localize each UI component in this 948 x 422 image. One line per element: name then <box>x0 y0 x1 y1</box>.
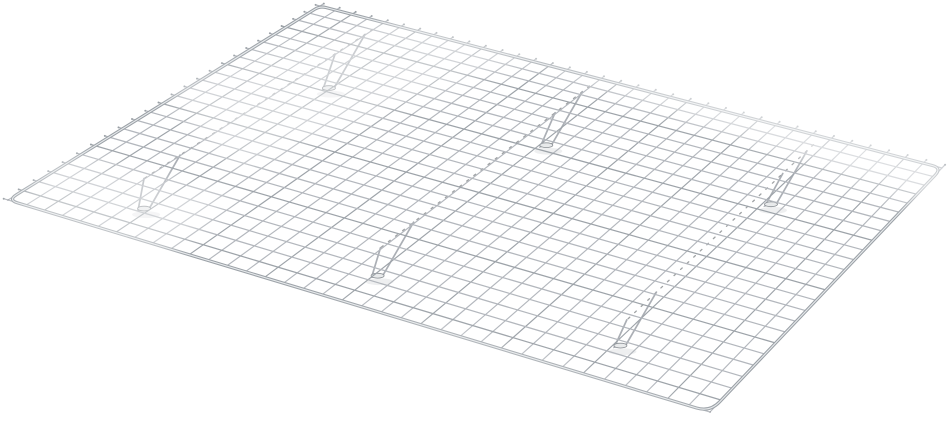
wire-tooth <box>18 188 20 190</box>
wire-tooth <box>292 18 294 20</box>
leg-foot <box>614 343 627 348</box>
wire-tooth <box>339 7 341 9</box>
wire-tooth <box>76 152 78 154</box>
wire-tooth <box>281 25 283 27</box>
wire-tooth <box>257 40 259 42</box>
wire-tooth <box>144 110 146 112</box>
cooling-rack-image <box>0 0 948 422</box>
wire-tooth <box>303 11 305 13</box>
wire-tooth <box>245 47 247 49</box>
wire-tooth <box>371 15 373 17</box>
wire-tooth <box>104 135 106 137</box>
wire-tooth <box>233 55 235 57</box>
wire-tooth <box>118 126 120 128</box>
wire-tooth <box>355 11 357 13</box>
wire-tooth <box>323 3 325 5</box>
cooling-rack-illustration <box>0 0 948 422</box>
wire-tooth <box>3 198 5 200</box>
product-photo <box>0 0 948 422</box>
foot-shadow <box>608 348 636 355</box>
wire-tooth <box>90 144 92 146</box>
product-image-canvas <box>0 0 948 422</box>
wire-tooth <box>315 4 317 6</box>
wire-tooth <box>131 118 133 120</box>
wire-tooth <box>158 102 160 104</box>
wire-tooth <box>221 62 223 64</box>
wire-tooth <box>269 32 271 34</box>
